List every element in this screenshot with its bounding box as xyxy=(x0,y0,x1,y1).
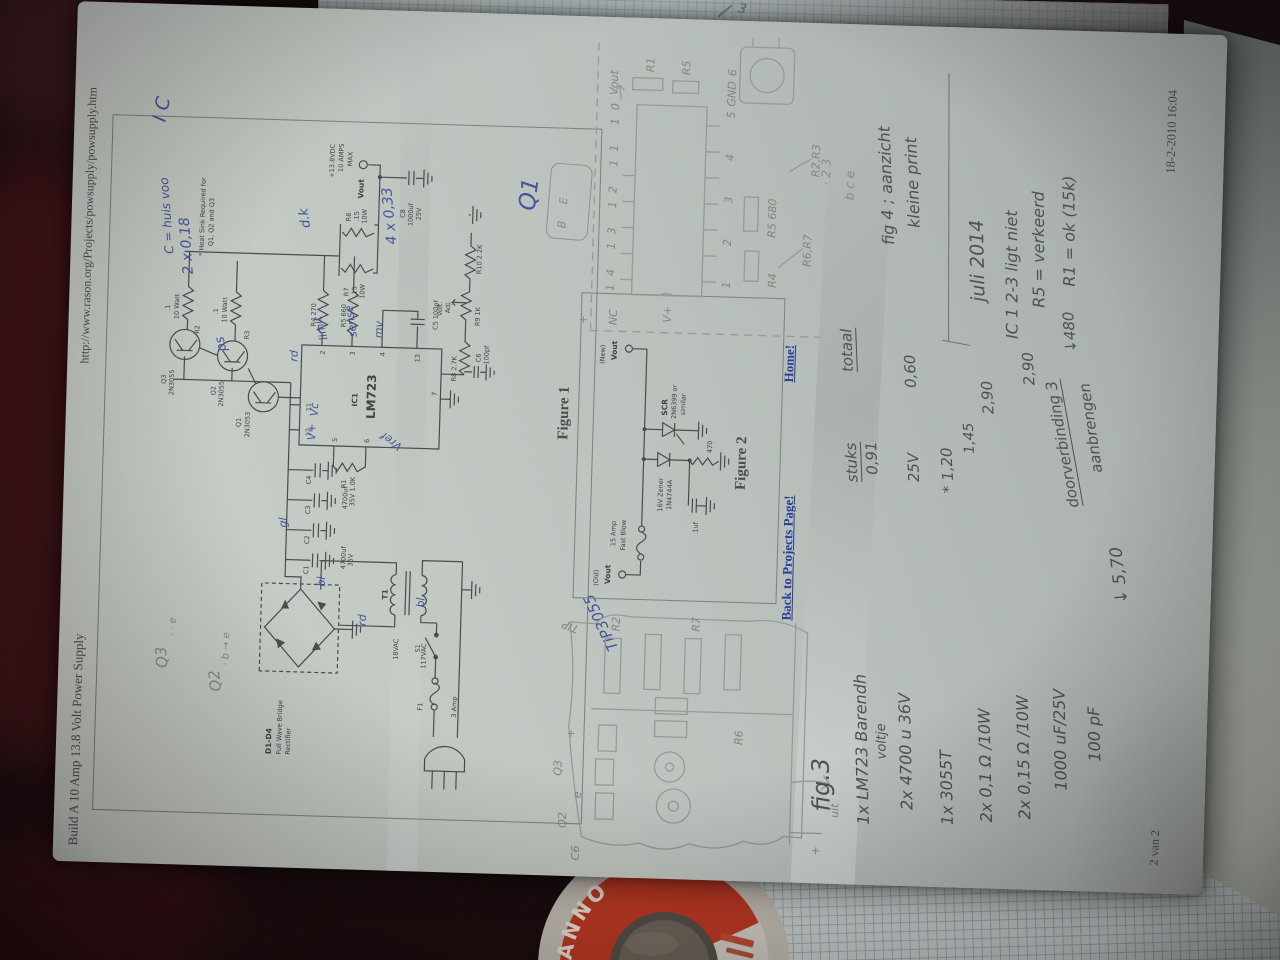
ic1-part: LM723 xyxy=(364,374,379,419)
fig3-tip: TIP xyxy=(560,617,581,635)
ink-pin-mv: mv xyxy=(372,321,386,339)
f1-ref: F1 xyxy=(416,703,424,711)
fig4-pins-top: 14 13 12 11 10 xyxy=(604,95,623,291)
vout-spec1: +13.8VDC xyxy=(328,143,337,178)
page-title: Build A 10 Amp 13.8 Volt Power Supply xyxy=(65,633,87,845)
fig4-r4: R4 xyxy=(766,273,779,288)
paper-page: Build A 10 Amp 13.8 Volt Power Supply ht… xyxy=(52,1,1227,895)
zener-label-1: 16V Zener xyxy=(656,477,665,512)
cap-label: .1uf xyxy=(691,521,699,535)
pin2: 2 xyxy=(319,350,327,354)
list-item: 100 pF xyxy=(1084,706,1104,761)
list-price: 2,90 xyxy=(978,380,998,414)
note-divider-line xyxy=(948,73,949,341)
r8-label: R8 2.7K xyxy=(450,355,459,381)
q2-part: 2N3055 xyxy=(217,381,226,407)
figure2-caption: Figure 2 xyxy=(733,436,752,490)
fig4-plus: + xyxy=(577,315,590,325)
fig3-q2: Q2 xyxy=(556,812,569,828)
fig3-caption: fig.3 xyxy=(806,758,835,812)
ink-pin-vplus: V+ xyxy=(305,423,318,440)
r10-label: R10 2.2K xyxy=(475,244,484,274)
r7-watt: 10W xyxy=(358,283,366,299)
fig4-nc: NC xyxy=(607,309,620,326)
t1-secondary: 18VAC xyxy=(392,638,401,660)
r2-value: .1 xyxy=(164,305,172,311)
fig4-r1: R1 xyxy=(644,57,657,72)
fig3-e: e xyxy=(571,791,584,798)
bridge-name2: Rectifier xyxy=(284,727,293,754)
scr-label-1: SCR xyxy=(660,399,669,416)
home-link: Home! xyxy=(781,345,798,383)
volt-adj-2: Adj. xyxy=(444,301,452,314)
list-item: 2x 4700 u 36V xyxy=(895,693,917,810)
q1-part: 2N3053 xyxy=(243,412,252,438)
fig4-r67: R6,R7 xyxy=(800,234,814,267)
list-item: 2x 0,15 Ω /10W xyxy=(1013,695,1035,820)
doodle-q3: Q3 xyxy=(152,646,172,669)
c8-volt: 25V xyxy=(415,207,423,221)
fig4-r5: R5 680 xyxy=(765,199,779,239)
doodle-q3-pins: · · e xyxy=(167,617,179,636)
pin6: 6 xyxy=(363,439,371,443)
new-vout-1: (New) xyxy=(598,344,607,363)
fig4-sketch: 1 2 3 4 5 6 7 GND 14 13 12 11 10 NC V+ V… xyxy=(570,31,837,346)
fig4-pins-bottom: 1 2 3 4 5 6 7 xyxy=(720,31,741,289)
note-doorverbinding-2: aanbrengen xyxy=(1075,382,1106,474)
list-price: 2,90 xyxy=(1019,352,1039,386)
fig3-sketch: Q2 Q3 C6 e + TIP R2 R7 R6 + uit xyxy=(539,582,852,876)
print-datetime: 18-2-2010 16:04 xyxy=(1163,90,1180,174)
r1-value: 1.0K xyxy=(349,476,357,492)
bridge-name: Full Wave Bridge xyxy=(275,700,285,754)
note-ic1: IC 1 2-3 ligt niet xyxy=(1002,210,1022,339)
fig4-pin-note-23: · 2 3 xyxy=(819,158,834,185)
page-url: http://www.rason.org/Projects/powsupply/… xyxy=(77,87,100,364)
fig4-vplus: V+ xyxy=(661,306,674,323)
res-label: 470 xyxy=(706,441,714,454)
ink-note-ps: ps xyxy=(212,335,230,353)
photo-scene: 3 STANNOL Build A 10 Amp 13.8 Volt Power… xyxy=(0,0,1280,960)
fig4-gnd: GND xyxy=(725,81,739,107)
ink-note-bl: bl xyxy=(315,576,328,586)
fig3-r6: R6 xyxy=(732,730,745,745)
pass-transistors: Q3 2N3055 Q2 2N3055 Q1 2N3053 xyxy=(158,329,302,439)
pin4: 4 xyxy=(379,352,387,356)
socket-b: B xyxy=(555,220,569,229)
doodle-q2: Q2 xyxy=(205,669,225,692)
r7-ref: R7 xyxy=(342,287,350,296)
fig3-plus1: + xyxy=(564,729,577,739)
fuse-label-1: 15 Amp xyxy=(609,521,618,546)
r9-label: R9 1K xyxy=(474,306,483,326)
old-vout-2: Vout xyxy=(603,564,613,584)
list-total: ↓ 5,70 xyxy=(1106,546,1132,605)
fig4-title-1: fig 4 ; aanzicht xyxy=(875,126,899,246)
pin13: 13 xyxy=(413,354,421,363)
vout-spec3: MAX xyxy=(346,151,354,166)
ink-note-rd2: rd xyxy=(356,614,369,626)
ic1-ref: IC1 xyxy=(350,393,359,407)
c4-ref: C4 xyxy=(305,475,313,484)
q3-part: 2N3055 xyxy=(167,369,176,395)
q1-ref: Q1 xyxy=(234,418,242,427)
fig3-q3: Q3 xyxy=(551,760,564,776)
r3-value: .1 xyxy=(212,308,220,314)
fig4-vout: Vout xyxy=(607,69,621,95)
r2-watt: 10 Watt xyxy=(173,293,182,319)
page-number: 2 van 2 xyxy=(1147,830,1164,866)
list-price: 25V xyxy=(904,452,923,482)
socket-e: E xyxy=(557,197,571,205)
r6-watt: 10W xyxy=(361,208,369,224)
fuse-label-2: Fast Blow xyxy=(619,519,628,551)
zener-label-2: 1N4744A xyxy=(665,479,674,510)
t1-ref: T1 xyxy=(380,589,389,600)
figure1-caption: Figure 1 xyxy=(555,386,574,440)
pin5: 5 xyxy=(331,438,339,442)
heatsink-note-2: Q1, Q2 and Q3 xyxy=(207,198,216,246)
list-item: 1x LM723 Barendh xyxy=(850,674,872,825)
note-r5: R5 = verkeerd xyxy=(1029,191,1049,308)
fig3-r2: R2 xyxy=(610,617,623,632)
note-juli-2014: juli 2014 xyxy=(966,219,990,302)
list-col-stuks: stuks xyxy=(842,442,863,482)
list-item: 1000 uF/25V xyxy=(1049,689,1070,791)
r3-ref: R3 xyxy=(243,331,251,340)
c1-volt: 35V xyxy=(346,553,354,567)
ink-note-gl: gl xyxy=(276,517,289,527)
ink-note-bl2: bl xyxy=(414,597,427,607)
c3-ref: C3 xyxy=(304,505,312,514)
list-price: * 1,20 xyxy=(937,447,958,494)
pin3: 3 xyxy=(349,351,357,355)
pin7: 7 xyxy=(430,392,438,396)
c1-ref: C1 xyxy=(302,565,310,574)
fig4-r5b: R5 xyxy=(680,60,693,75)
bridge-ref: D1-D4 xyxy=(264,728,274,754)
fig3-plus2: + xyxy=(809,846,822,856)
list-price: 0,91 xyxy=(862,441,881,475)
r3-watt: 10 Watt xyxy=(221,297,230,323)
list-col-totaal: totaal xyxy=(837,328,858,372)
fig4-pin-note-bce: b c e xyxy=(842,171,857,201)
vout-spec2: 10 AMPS xyxy=(337,143,346,172)
scr-label-2: 2N6399 or xyxy=(670,384,679,419)
c6-value: 100pf xyxy=(482,345,491,365)
c2-ref: C2 xyxy=(303,535,311,544)
list-item: 2x 0,1 Ω /10W xyxy=(974,708,996,823)
fig4-title-2: kleine print xyxy=(901,137,924,228)
ink-note-rd: rd xyxy=(287,350,300,362)
vout-label: Vout xyxy=(356,179,366,199)
f1-value: 3 Amp xyxy=(450,696,459,717)
list-price: 1,45 xyxy=(961,422,978,454)
new-vout-2: Vout xyxy=(610,340,620,360)
doodle-q2-pins: · b → e xyxy=(220,632,232,666)
t1-primary: 117VAC xyxy=(419,643,428,669)
fig3-c6: C6 xyxy=(569,845,582,860)
fig3-r7: R7 xyxy=(690,617,703,632)
list-price: 0,60 xyxy=(901,354,920,388)
r1-ref: R1 xyxy=(340,479,348,488)
ink-q1-big: Q1 xyxy=(514,176,544,212)
ink-note-dk: d.k xyxy=(296,207,314,229)
note-480: ↓480 xyxy=(1059,311,1080,353)
volt-adj-1: Volt. xyxy=(436,302,444,317)
list-item-sub: voltje xyxy=(874,723,890,759)
c3-volt: 35V xyxy=(348,493,356,507)
scr-label-3: similar xyxy=(679,393,688,415)
filter-capacitors: C1 C2 C3 C4 4700uf 35V 4700uf 35V xyxy=(285,461,357,576)
r2-ref: R2 xyxy=(193,325,201,334)
note-divider-tick xyxy=(942,340,970,346)
list-item: 1x 3055T xyxy=(936,750,957,826)
note-r1-ok: R1 = ok (15k) xyxy=(1059,175,1079,286)
ink-pin-vc: Vc xyxy=(308,403,321,417)
